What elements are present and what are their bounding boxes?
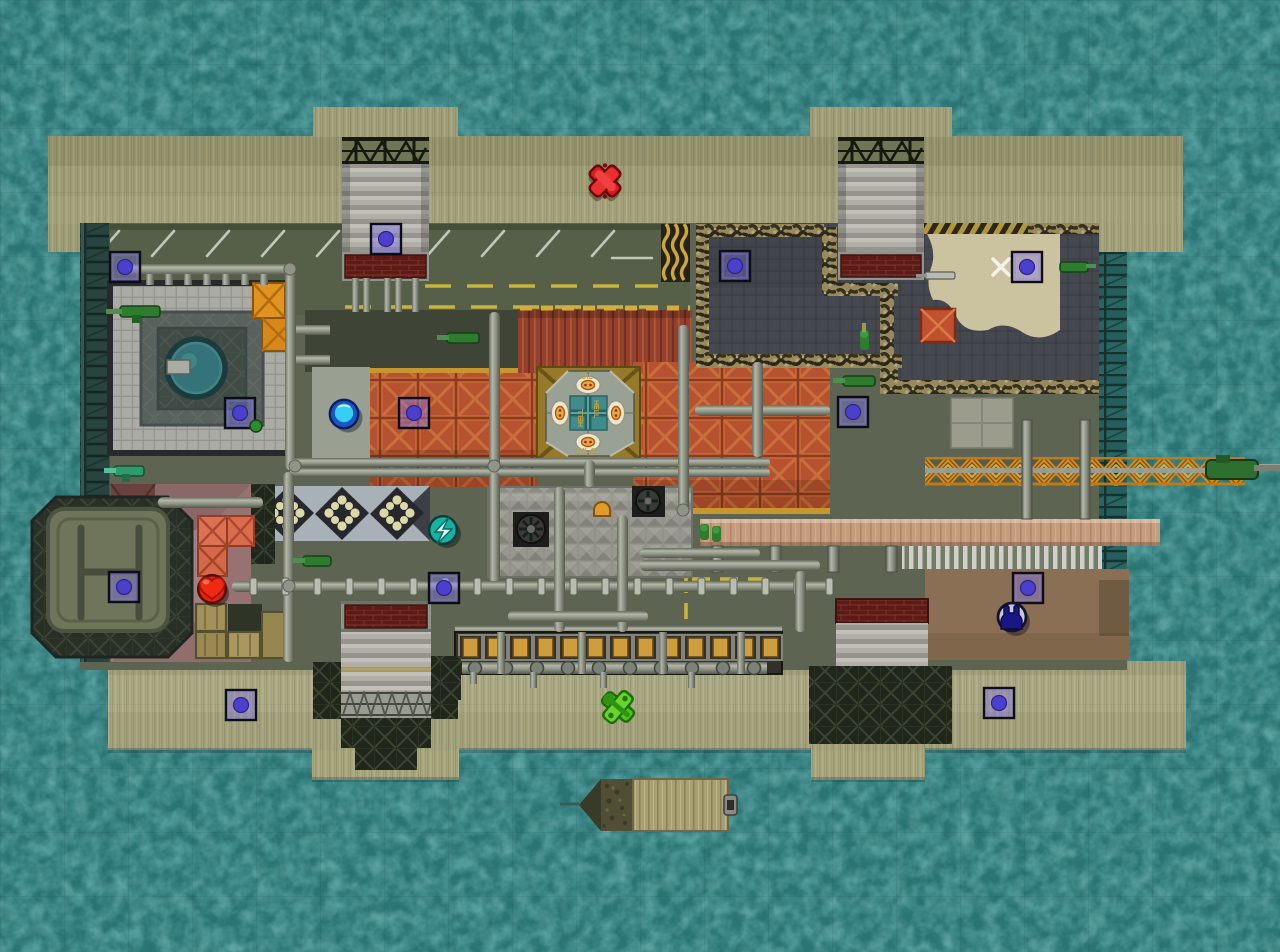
svg-text:OIL: OIL <box>581 374 593 381</box>
svg-text:HELL: HELL <box>578 408 585 427</box>
svg-text:OIL-3: OIL-3 <box>577 448 595 455</box>
svg-text:HELL: HELL <box>592 400 599 419</box>
